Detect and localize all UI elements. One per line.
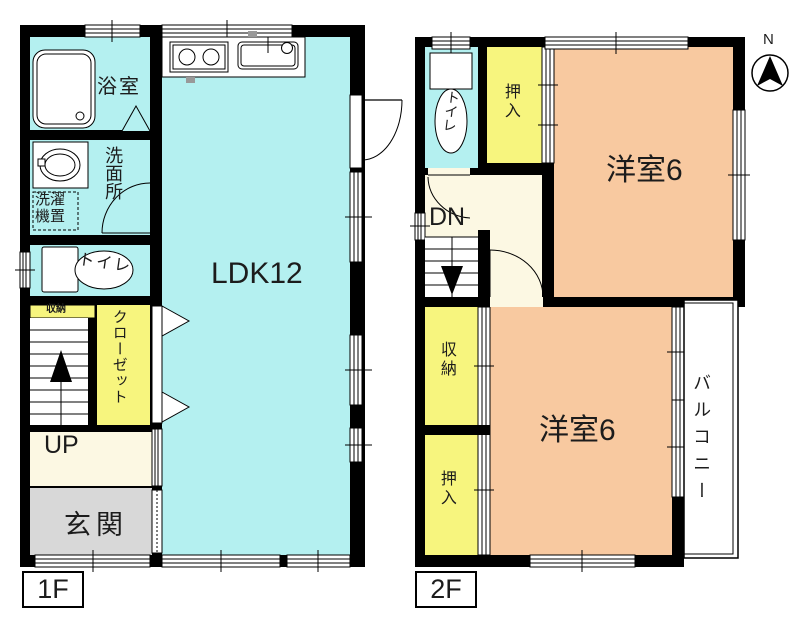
ldk-label: LDK12 xyxy=(211,257,303,291)
back-door xyxy=(350,95,402,168)
oshiire-upper-label: 押入 xyxy=(501,83,519,145)
storage-strip-label: 収納 xyxy=(46,304,66,315)
dn-label: DN xyxy=(429,203,465,231)
stairs-2f xyxy=(425,237,478,297)
north-compass xyxy=(752,55,788,91)
counter-tab-top xyxy=(248,31,257,37)
bedroom-lower-label: 洋室6 xyxy=(539,414,616,448)
counter-tab-bottom xyxy=(186,77,195,83)
floorplan-canvas: 浴室 洗面所 洗濯 機置 トイレ 収納 クローゼット UP 玄関 LDK12 1… xyxy=(0,0,803,624)
bedroom-upper-label: 洋室6 xyxy=(606,154,683,188)
closet-label: クローゼット xyxy=(110,309,127,423)
floor2-tag: 2F xyxy=(415,571,477,608)
entrance-label: 玄関 xyxy=(64,510,128,540)
bath-label: 浴室 xyxy=(97,76,141,98)
north-label: N xyxy=(763,32,774,49)
wash-basin xyxy=(33,142,88,188)
bathtub xyxy=(33,50,95,128)
oshiire-lower-label: 押入 xyxy=(437,470,455,530)
balcony-label: バルコニー xyxy=(691,373,711,559)
laundry-label: 洗濯 機置 xyxy=(35,192,65,226)
kitchen-counter xyxy=(162,37,305,77)
storage-2f-label: 収納 xyxy=(437,341,455,401)
genkan-partition xyxy=(152,490,162,553)
floor1-plan xyxy=(15,20,402,572)
stair-wall-stub xyxy=(478,230,490,297)
washroom-label: 洗面所 xyxy=(103,146,123,238)
floor1-tag: 1F xyxy=(22,571,84,608)
up-label: UP xyxy=(44,431,79,459)
room-ldk xyxy=(162,37,350,555)
hall-ldk-opening xyxy=(152,429,162,486)
